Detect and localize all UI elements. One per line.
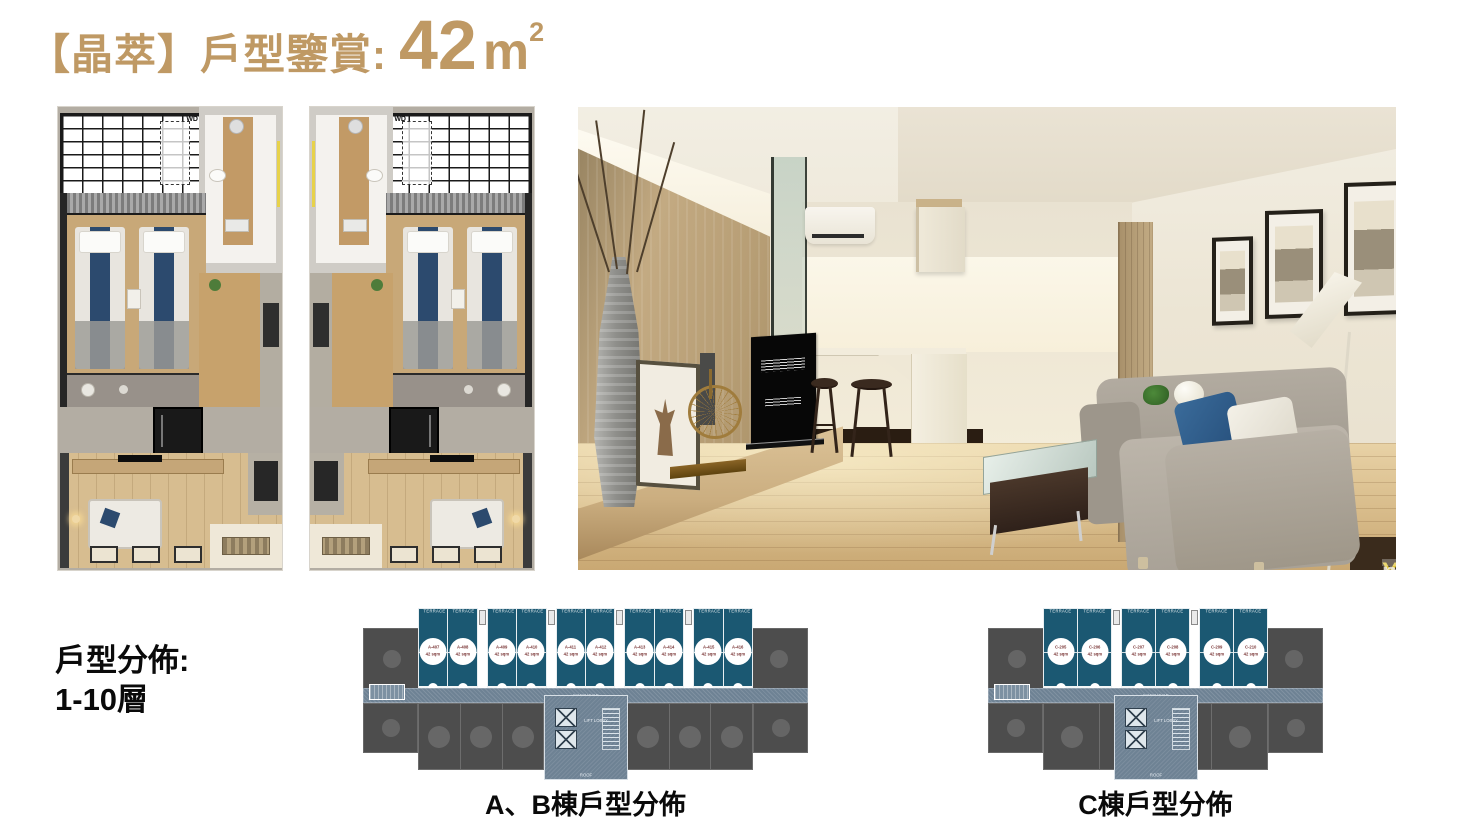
dimmed-unit — [502, 703, 544, 770]
lift-icon — [1125, 708, 1147, 727]
lift-core: LIFT LOBBY ROOF — [544, 695, 628, 780]
bed — [75, 227, 125, 369]
unit-badge: C-21042 sqm — [1237, 638, 1264, 665]
unit-badge: A-40942 sqm — [489, 638, 516, 665]
terrace-label: TERRACE — [659, 610, 678, 614]
bed — [467, 227, 517, 369]
television — [751, 333, 816, 446]
ab-floor-diagram: TERRACEA-40742 sqmTERRACEA-40842 sqmTERR… — [363, 600, 808, 778]
balcony-grille: WD — [390, 113, 532, 197]
unit-C-205: TERRACEC-20542 sqm — [1043, 608, 1078, 688]
plant-icon — [209, 279, 221, 291]
bathroom — [310, 107, 393, 273]
dimmed-unit — [627, 703, 669, 770]
unit-badge: A-40842 sqm — [449, 638, 476, 665]
c-diagram-caption: C棟戶型分佈 — [988, 783, 1323, 822]
terrace-label: TERRACE — [591, 610, 610, 614]
gray-unit-wing — [988, 703, 1043, 753]
gray-unit-wing — [753, 703, 808, 753]
terrace-label: TERRACE — [1127, 610, 1149, 614]
washer-dryer-box — [160, 121, 190, 185]
unit-C-210: TERRACEC-21042 sqm — [1234, 608, 1268, 688]
unit-badge: C-20942 sqm — [1203, 638, 1230, 665]
c-floor-diagram: TERRACEC-20542 sqmTERRACEC-20642 sqmTERR… — [988, 600, 1323, 778]
hallway-kitchen — [310, 273, 393, 407]
wall-picture-frame — [1212, 236, 1253, 325]
unit-A-410: TERRACEA-41042 sqm — [517, 608, 546, 688]
dimmed-unit — [418, 703, 460, 770]
dimmed-unit — [460, 703, 502, 770]
living-room — [310, 453, 532, 568]
roof-label: ROOF — [1149, 774, 1161, 778]
terrace-label: TERRACE — [1239, 610, 1261, 614]
unit-badge: A-41142 sqm — [557, 638, 584, 665]
air-conditioner — [805, 207, 875, 244]
toilet-icon — [366, 169, 383, 182]
gray-unit-wing — [363, 628, 421, 690]
dimmed-unit — [710, 703, 753, 770]
gray-unit-wing — [1268, 703, 1323, 753]
bed — [139, 227, 189, 369]
bathroom — [199, 107, 282, 273]
unit-badge: A-41042 sqm — [518, 638, 545, 665]
terrace-label: TERRACE — [522, 610, 541, 614]
bed — [403, 227, 453, 369]
shower-icon — [348, 119, 363, 134]
floor-lamp-icon — [72, 515, 80, 523]
unit-badge: A-41342 sqm — [626, 638, 653, 665]
bar-stool — [851, 379, 892, 459]
roof-label: ROOF — [579, 774, 591, 778]
terrace-label: TERRACE — [728, 610, 747, 614]
bedroom — [386, 193, 532, 407]
unit-A-408: TERRACEA-40842 sqm — [448, 608, 477, 688]
slide: { "title": { "text": "【晶萃】戶型鑒賞:", "area_… — [0, 0, 1484, 819]
title-area-value: 42 — [399, 10, 477, 80]
unit-badge: C-20542 sqm — [1047, 638, 1074, 665]
washer-dryer-label: WD — [394, 116, 406, 123]
stairs-icon — [1172, 708, 1190, 750]
title-area-exponent: 2 — [529, 17, 544, 47]
unit-badge: A-41442 sqm — [656, 638, 683, 665]
bar-stool — [811, 378, 838, 454]
washer-dryer-label: WD — [186, 116, 198, 123]
lift-core: LIFT LOBBY ROOF — [1114, 695, 1198, 780]
terrace-label: TERRACE — [1205, 610, 1227, 614]
floors-note: 戶型分佈: 1-10層 — [55, 642, 189, 720]
balcony-grille: WD — [60, 113, 202, 197]
unit-C-209: TERRACEC-20942 sqm — [1199, 608, 1234, 688]
shower-icon — [229, 119, 244, 134]
toilet-icon — [209, 169, 226, 182]
dresser — [67, 373, 206, 407]
tv — [118, 455, 162, 462]
unit-C-206: TERRACEC-20642 sqm — [1078, 608, 1112, 688]
wardrobe — [389, 407, 439, 457]
nightstand — [127, 289, 141, 309]
bedroom — [60, 193, 206, 407]
nightstand — [451, 289, 465, 309]
plant-icon — [1143, 385, 1169, 405]
dimmed-unit — [1211, 703, 1268, 770]
unit-A-416: TERRACEA-41642 sqm — [724, 608, 753, 688]
floors-note-line2: 1-10層 — [55, 681, 189, 720]
page-title: 【晶萃】戶型鑒賞: 42 m2 — [28, 10, 544, 82]
dresser — [386, 373, 525, 407]
unit-badge: C-20642 sqm — [1081, 638, 1108, 665]
unit-badge: A-41542 sqm — [695, 638, 722, 665]
tv — [430, 455, 474, 462]
terrace-label: TERRACE — [492, 610, 511, 614]
wardrobe — [153, 407, 203, 457]
unit-badge: C-20842 sqm — [1159, 638, 1186, 665]
unit-badge: A-41242 sqm — [587, 638, 614, 665]
terrace-label: TERRACE — [1083, 610, 1105, 614]
floorplan-left: WD — [58, 107, 282, 570]
gray-unit-wing — [1265, 628, 1323, 690]
floorplan-right-mirrored: WD — [310, 107, 534, 570]
lift-icon — [555, 708, 577, 727]
unit-A-411: TERRACEA-41142 sqm — [556, 608, 586, 688]
deer-art — [652, 398, 678, 456]
unit-badge: A-41642 sqm — [724, 638, 751, 665]
lift-icon — [1125, 730, 1147, 749]
interior-render: Younique — [578, 107, 1396, 570]
doormat — [222, 537, 270, 555]
terrace-label: TERRACE — [699, 610, 718, 614]
unit-A-414: TERRACEA-41442 sqm — [655, 608, 684, 688]
floor-lamp-icon — [512, 515, 520, 523]
terrace-label: TERRACE — [561, 610, 580, 614]
dimmed-unit — [1043, 703, 1099, 770]
unit-A-413: TERRACEA-41342 sqm — [624, 608, 654, 688]
title-area-unit: m2 — [483, 17, 544, 82]
terrace-label: TERRACE — [1161, 610, 1183, 614]
unit-A-415: TERRACEA-41542 sqm — [693, 608, 723, 688]
doormat — [322, 537, 370, 555]
floorplan-render: WD — [58, 107, 282, 570]
highlighted-units-row: TERRACEC-20542 sqmTERRACEC-20642 sqmTERR… — [1043, 608, 1268, 688]
floors-note-line1: 戶型分佈: — [55, 642, 189, 681]
unit-badge: A-40742 sqm — [420, 638, 447, 665]
wheel-decor — [688, 385, 742, 439]
unit-C-208: TERRACEC-20842 sqm — [1156, 608, 1190, 688]
unit-C-207: TERRACEC-20742 sqm — [1121, 608, 1156, 688]
sofa — [430, 499, 504, 549]
gray-unit-wing — [988, 628, 1046, 690]
title-text: 【晶萃】戶型鑒賞: — [28, 21, 387, 82]
unit-A-409: TERRACEA-40942 sqm — [487, 608, 517, 688]
wall-cabinet — [916, 207, 965, 272]
unit-A-412: TERRACEA-41242 sqm — [586, 608, 615, 688]
gray-unit-wing — [750, 628, 808, 690]
terrace-label: TERRACE — [1049, 610, 1071, 614]
unit-badge: C-20742 sqm — [1125, 638, 1152, 665]
unit-A-407: TERRACEA-40742 sqm — [418, 608, 448, 688]
washer-dryer-box — [402, 121, 432, 185]
terrace-label: TERRACE — [453, 610, 472, 614]
terrace-label: TERRACE — [630, 610, 649, 614]
dimmed-unit — [669, 703, 711, 770]
hallway-kitchen — [199, 273, 282, 407]
living-room — [60, 453, 282, 568]
ab-diagram-caption: A、B棟戶型分佈 — [363, 783, 808, 822]
sink-icon — [343, 219, 367, 232]
terrace-label: TERRACE — [424, 610, 443, 614]
stairs-icon — [602, 708, 620, 750]
lift-icon — [555, 730, 577, 749]
sink-icon — [225, 219, 249, 232]
sofa — [88, 499, 162, 549]
plant-icon — [371, 279, 383, 291]
gray-unit-wing — [363, 703, 418, 753]
floorplan-render: WD — [310, 107, 534, 570]
highlighted-units-row: TERRACEA-40742 sqmTERRACEA-40842 sqmTERR… — [418, 608, 753, 688]
